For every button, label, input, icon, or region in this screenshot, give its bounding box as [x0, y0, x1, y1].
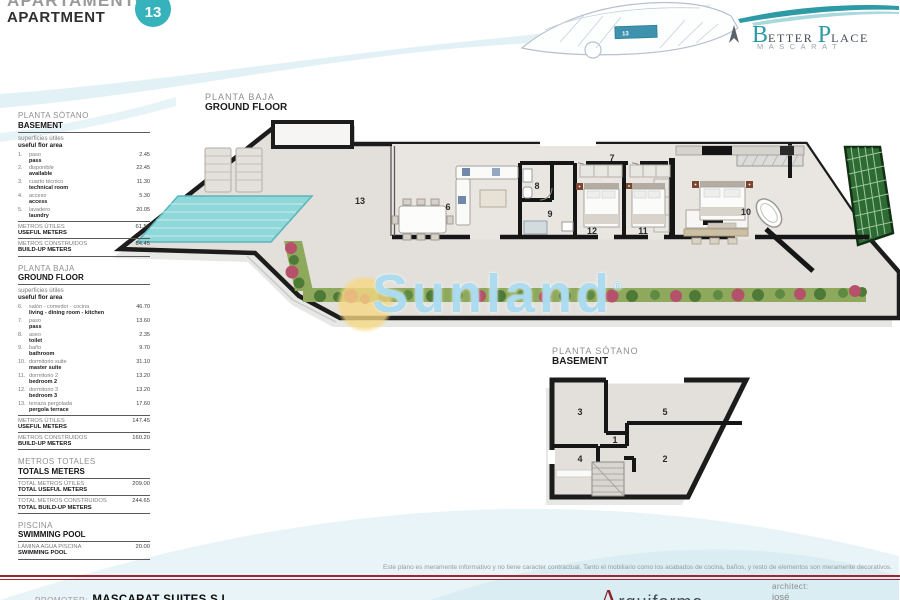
row-value: 13.20	[136, 373, 150, 385]
ground-floor-title-en: GROUND FLOOR	[205, 102, 287, 113]
label-en: access	[29, 199, 135, 205]
label-en: bedroom 3	[29, 393, 132, 399]
area-row: 13.terraza pergoladapergola terrace17.60	[18, 401, 150, 413]
sidebar-section-pool: PISCINA SWIMMING POOL LÁMINA AGUA PISCIN…	[18, 522, 150, 560]
area-row: 2.disponibleavailable22.45	[18, 165, 150, 177]
section-title-es: PLANTA SÓTANO	[18, 112, 150, 121]
studio-name: rquiforma	[619, 592, 704, 600]
label-en: available	[29, 171, 132, 177]
ground-floor-plan: 13 6 7 8 9 12 11 10	[113, 122, 899, 327]
total-value: 20.00	[135, 544, 150, 556]
room-label-2: 2	[662, 454, 667, 464]
site-plan: 13	[522, 3, 739, 58]
row-labels: pasopass	[29, 152, 135, 164]
divider	[18, 495, 150, 496]
label-en: master suite	[29, 365, 132, 371]
row-labels: cuarto técnicotechnical room	[29, 179, 133, 191]
architect-label: architect:	[772, 582, 808, 591]
totals-labels: LÁMINA AGUA PISCINASWIMMING POOL	[18, 544, 131, 556]
room-label-11: 11	[638, 226, 648, 236]
promoter-credit: PROMOTER: MASCARAT SUITES S.L.	[35, 590, 232, 600]
totals-row: METROS CONSTRUIDOSBUILD-UP METERS84.45	[18, 241, 150, 253]
totals-labels: METROS CONSTRUIDOSBUILD-UP METERS	[18, 435, 128, 447]
divider	[18, 238, 150, 239]
room-label-8: 8	[534, 181, 539, 191]
divider	[18, 449, 150, 450]
total-value: 160.20	[132, 435, 150, 447]
section-subtitle-es: superficies útiles	[18, 135, 150, 142]
row-number: 9.	[18, 345, 29, 357]
label-en: pergola terrace	[29, 407, 132, 413]
totals-row: TOTAL METROS CONSTRUIDOSTOTAL BUILD-UP M…	[18, 498, 150, 510]
divider	[18, 132, 150, 133]
label-en: toilet	[29, 338, 135, 344]
unit-number: 13	[145, 0, 162, 21]
area-row: 10.dormitorio suitemaster suite31.10	[18, 359, 150, 371]
row-labels: salón - comedor - cocinaliving - dining …	[29, 304, 132, 316]
area-row: 12.dormitorio 3bedroom 313.20	[18, 387, 150, 399]
section-title-es: METROS TOTALES	[18, 458, 150, 467]
sidebar-section-totals: METROS TOTALES TOTALS METERS TOTAL METRO…	[18, 458, 150, 513]
label-en: bathroom	[29, 351, 135, 357]
basement-title-es: PLANTA SÓTANO	[552, 346, 639, 356]
row-value: 2.35	[139, 332, 150, 344]
row-labels: bañobathroom	[29, 345, 135, 357]
total-label-en: BUILD-UP METERS	[18, 247, 131, 253]
section-title-en: BASEMENT	[18, 121, 150, 130]
architecture-studio-logo: Arquiforma	[599, 584, 704, 600]
row-value: 13.60	[136, 318, 150, 330]
totals-row: LÁMINA AGUA PISCINASWIMMING POOL20.00	[18, 544, 150, 556]
row-number: 11.	[18, 373, 29, 385]
area-row: 4.accesoaccess5.30	[18, 193, 150, 205]
row-number: 2.	[18, 165, 29, 177]
promoter-label: PROMOTER:	[35, 596, 88, 600]
label-en: bedroom 2	[29, 379, 132, 385]
architect-name: josé	[772, 592, 789, 600]
total-label-en: TOTAL USEFUL METERS	[18, 487, 128, 493]
totals-labels: METROS ÚTILESUSEFUL METERS	[18, 418, 128, 430]
row-number: 12.	[18, 387, 29, 399]
total-label-en: USEFUL METERS	[18, 424, 128, 430]
total-value: 84.45	[135, 241, 150, 253]
total-label-en: SWIMMING POOL	[18, 550, 131, 556]
row-number: 8.	[18, 332, 29, 344]
room-label-6: 6	[445, 202, 450, 212]
studio-initial: A	[599, 584, 619, 600]
totals-row: METROS ÚTILESUSEFUL METERS61.55	[18, 224, 150, 236]
label-en: pass	[29, 324, 132, 330]
row-labels: terraza pergoladapergola terrace	[29, 401, 132, 413]
row-value: 2.45	[139, 152, 150, 164]
section-title-es: PLANTA BAJA	[18, 265, 150, 274]
section-subtitle-es: superficies útiles	[18, 287, 150, 294]
divider	[18, 256, 150, 257]
totals-labels: METROS CONSTRUIDOSBUILD-UP METERS	[18, 241, 131, 253]
floor-plan-page: 13	[0, 0, 900, 600]
area-row: 7.pasopass13.60	[18, 318, 150, 330]
room-label-3: 3	[577, 407, 582, 417]
row-value: 20.05	[136, 207, 150, 219]
row-value: 17.60	[136, 401, 150, 413]
row-value: 5.30	[139, 193, 150, 205]
room-label-4: 4	[577, 454, 582, 464]
label-en: living - dining room - kitchen	[29, 310, 132, 316]
site-plan-unit-label: 13	[622, 31, 630, 37]
total-value: 209.00	[132, 481, 150, 493]
room-label-13: 13	[355, 196, 365, 206]
brand-subtitle: MASCARAT	[757, 42, 842, 51]
basement-title: PLANTA SÓTANO BASEMENT	[552, 346, 639, 367]
row-value: 11.30	[137, 179, 150, 191]
area-summary-sidebar: PLANTA SÓTANO BASEMENT superficies útile…	[18, 112, 150, 568]
total-label-en: TOTAL BUILD-UP METERS	[18, 505, 128, 511]
divider	[18, 541, 150, 542]
divider	[18, 415, 150, 416]
row-labels: disponibleavailable	[29, 165, 132, 177]
sidebar-section-basement: PLANTA SÓTANO BASEMENT superficies útile…	[18, 112, 150, 257]
row-number: 7.	[18, 318, 29, 330]
area-row: 11.dormitorio 2bedroom 213.20	[18, 373, 150, 385]
section-title-en: GROUND FLOOR	[18, 273, 150, 282]
footer-rule-top	[0, 575, 900, 577]
room-label-10: 10	[741, 207, 751, 217]
section-subtitle-en: useful flor area	[18, 294, 150, 301]
row-value: 46.70	[136, 304, 150, 316]
basement-plan: 3 5 1 4 2	[546, 376, 746, 505]
row-value: 22.45	[136, 165, 150, 177]
area-row: 6.salón - comedor - cocinaliving - dinin…	[18, 304, 150, 316]
row-labels: accesoaccess	[29, 193, 135, 205]
row-labels: dormitorio 3bedroom 3	[29, 387, 132, 399]
total-value: 244.65	[132, 498, 150, 510]
row-number: 10.	[18, 359, 29, 371]
totals-labels: TOTAL METROS ÚTILESTOTAL USEFUL METERS	[18, 481, 128, 493]
sidebar-section-ground-floor: PLANTA BAJA GROUND FLOOR superficies úti…	[18, 265, 150, 451]
section-title-es: PISCINA	[18, 522, 150, 531]
row-number: 3.	[18, 179, 29, 191]
ground-floor-title-es: PLANTA BAJA	[205, 92, 287, 102]
totals-labels: TOTAL METROS CONSTRUIDOSTOTAL BUILD-UP M…	[18, 498, 128, 510]
section-title-en: SWIMMING POOL	[18, 530, 150, 539]
section-subtitle-en: useful flor area	[18, 142, 150, 149]
room-label-7: 7	[609, 153, 614, 163]
divider	[18, 432, 150, 433]
row-value: 13.20	[136, 387, 150, 399]
total-label-en: USEFUL METERS	[18, 230, 131, 236]
total-label-en: BUILD-UP METERS	[18, 441, 128, 447]
divider	[18, 221, 150, 222]
section-title-en: TOTALS METERS	[18, 467, 150, 476]
divider	[18, 478, 150, 479]
area-row: 1.pasopass2.45	[18, 152, 150, 164]
ground-floor-title: PLANTA BAJA GROUND FLOOR	[205, 92, 287, 113]
row-labels: dormitorio 2bedroom 2	[29, 373, 132, 385]
area-row: 5.lavaderolaundry20.05	[18, 207, 150, 219]
row-number: 6.	[18, 304, 29, 316]
divider	[18, 559, 150, 560]
totals-labels: METROS ÚTILESUSEFUL METERS	[18, 224, 131, 236]
row-value: 9.70	[139, 345, 150, 357]
coffee-table	[480, 190, 506, 207]
divider	[18, 284, 150, 285]
totals-row: METROS CONSTRUIDOSBUILD-UP METERS160.20	[18, 435, 150, 447]
porch-roof	[273, 122, 352, 147]
room-label-5: 5	[662, 407, 667, 417]
label-en: pass	[29, 158, 135, 164]
label-en: laundry	[29, 213, 132, 219]
room-label-12: 12	[587, 226, 597, 236]
room-label-9: 9	[547, 209, 552, 219]
bed-bedroom-2	[626, 183, 665, 227]
row-number: 4.	[18, 193, 29, 205]
disclaimer-text: Este plano es meramente informativo y no…	[383, 564, 892, 571]
footer-rule-bottom	[0, 579, 900, 580]
total-value: 61.55	[135, 224, 150, 236]
totals-row: METROS ÚTILESUSEFUL METERS147.45	[18, 418, 150, 430]
row-labels: pasopass	[29, 318, 132, 330]
row-number: 13.	[18, 401, 29, 413]
totals-row: TOTAL METROS ÚTILESTOTAL USEFUL METERS20…	[18, 481, 150, 493]
area-row: 3.cuarto técnicotechnical room11.30	[18, 179, 150, 191]
row-labels: lavaderolaundry	[29, 207, 132, 219]
total-value: 147.45	[132, 418, 150, 430]
area-row: 8.aseotoilet2.35	[18, 332, 150, 344]
row-value: 31.10	[136, 359, 150, 371]
row-number: 1.	[18, 152, 29, 164]
divider	[18, 513, 150, 514]
page-title-en: APARTMENT	[7, 9, 105, 26]
label-en: technical room	[29, 185, 133, 191]
basement-title-en: BASEMENT	[552, 356, 639, 367]
area-row: 9.bañobathroom9.70	[18, 345, 150, 357]
row-number: 5.	[18, 207, 29, 219]
basement-outline	[552, 380, 746, 497]
row-labels: aseotoilet	[29, 332, 135, 344]
promoter-name: MASCARAT SUITES S.L.	[92, 594, 232, 600]
row-labels: dormitorio suitemaster suite	[29, 359, 132, 371]
room-label-1: 1	[612, 435, 617, 445]
basement-stair	[592, 462, 624, 496]
